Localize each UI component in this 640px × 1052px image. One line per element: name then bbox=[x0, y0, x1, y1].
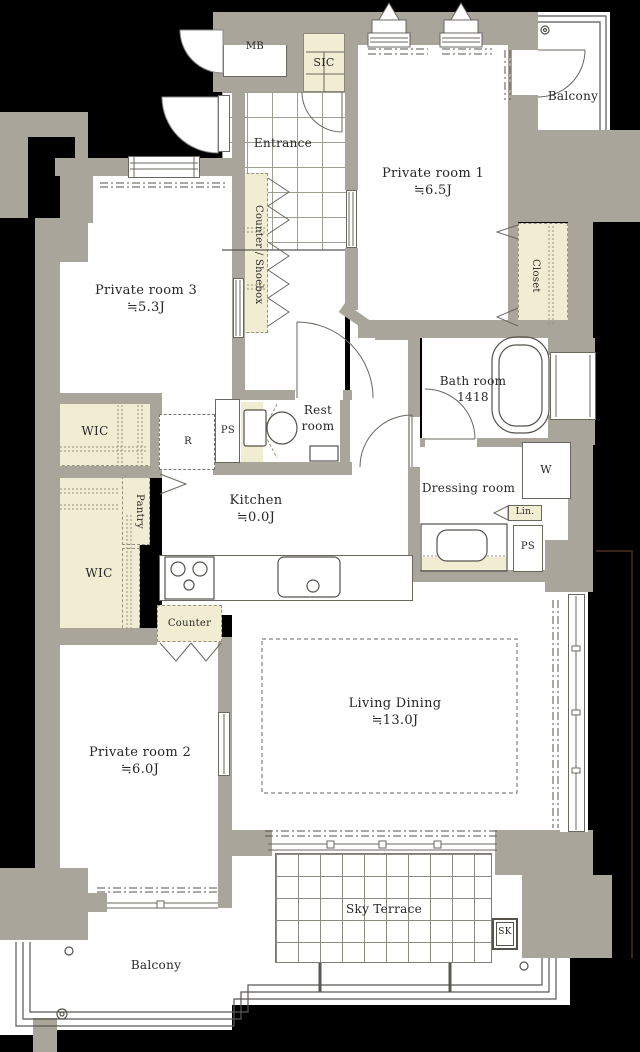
room-label-entrance: Entrance bbox=[238, 136, 328, 152]
room-name: Private room 3 bbox=[95, 283, 197, 298]
private-room3-sliding-door bbox=[233, 278, 244, 338]
room-label-wic-upper: WIC bbox=[65, 424, 125, 440]
room-size: 1418 bbox=[457, 390, 489, 404]
room-size: ≒6.5J bbox=[414, 183, 452, 198]
room-label-counter-shoebox: Counter / Shoebox bbox=[245, 182, 265, 327]
wall bbox=[53, 393, 162, 404]
wall bbox=[568, 440, 593, 540]
room-size: ≒5.3J bbox=[127, 300, 165, 315]
room-label-refrigerator: R bbox=[180, 435, 196, 448]
room-label-ps-left: PS bbox=[217, 424, 239, 437]
private-room1-sliding-door bbox=[346, 190, 357, 248]
room-label-wic-lower: WIC bbox=[69, 566, 129, 582]
private-room3-window bbox=[128, 156, 200, 178]
room-label-balcony-bottom: Balcony bbox=[116, 958, 196, 974]
room-label-linen: Lin. bbox=[510, 507, 540, 519]
wall bbox=[358, 320, 570, 338]
wall bbox=[345, 45, 358, 190]
ld-window bbox=[568, 594, 585, 832]
room-label-sic: SIC bbox=[306, 56, 342, 70]
room-size: ≒0.0J bbox=[237, 510, 275, 525]
room-label-bathroom: Bath room 1418 bbox=[428, 374, 518, 405]
pillar bbox=[0, 137, 28, 218]
balcony-door-gap bbox=[512, 50, 538, 95]
room-label-mb: MB bbox=[231, 40, 279, 53]
room-label-private2: Private room 2 ≒6.0J bbox=[80, 745, 200, 779]
private-room2-window bbox=[218, 712, 230, 776]
kitchen-counter bbox=[159, 555, 413, 601]
room-label-restroom: Rest room bbox=[294, 403, 342, 434]
room-name: Kitchen bbox=[230, 493, 283, 508]
dressing-door-gap bbox=[410, 417, 420, 467]
room-label-dressing: Dressing room bbox=[411, 481, 526, 497]
room-label-private3: Private room 3 ≒5.3J bbox=[86, 283, 206, 317]
wall bbox=[213, 77, 303, 92]
bathroom-window bbox=[550, 352, 596, 420]
room-name: Living Dining bbox=[349, 696, 442, 711]
wall bbox=[35, 262, 60, 905]
wic-lower-shelf-col bbox=[122, 548, 140, 633]
balcony-top-area bbox=[537, 12, 610, 132]
pillar bbox=[0, 868, 88, 940]
wall bbox=[218, 830, 272, 856]
room-label-pantry: Pantry bbox=[126, 482, 146, 540]
bathroom-door-gap bbox=[425, 438, 477, 447]
room-label-kitchen: Kitchen ≒0.0J bbox=[216, 493, 296, 527]
restroom-vanity-strip bbox=[241, 402, 263, 462]
wall bbox=[345, 248, 358, 310]
wall bbox=[53, 466, 153, 478]
room-label-balcony-top: Balcony bbox=[543, 89, 603, 105]
wall bbox=[53, 628, 157, 645]
wall bbox=[515, 130, 640, 222]
room-name: Bath room bbox=[440, 374, 507, 388]
wall bbox=[522, 875, 612, 958]
pillar bbox=[0, 112, 88, 137]
room-label-counter: Counter bbox=[159, 617, 220, 630]
room-label-sky-terrace: Sky Terrace bbox=[334, 902, 434, 918]
room-label-closet: Closet bbox=[524, 240, 542, 312]
entrance-door-leaf bbox=[218, 95, 230, 152]
private-room3-area-upper bbox=[93, 176, 240, 223]
pillar bbox=[33, 1018, 57, 1052]
room-name: Private room 2 bbox=[89, 745, 191, 760]
wall bbox=[495, 830, 593, 875]
room-size: ≒13.0J bbox=[372, 713, 419, 728]
pillar bbox=[75, 137, 88, 218]
room-label-washer: W bbox=[536, 463, 556, 477]
wall bbox=[232, 77, 245, 398]
fence-area-right bbox=[540, 955, 570, 1005]
wall bbox=[545, 540, 593, 592]
room-name: Private room 1 bbox=[382, 166, 484, 181]
room-label-ps-right: PS bbox=[516, 540, 540, 553]
wall bbox=[568, 222, 593, 342]
restroom-door-gap bbox=[295, 390, 343, 400]
wall bbox=[35, 218, 88, 262]
room-label-private1: Private room 1 ≒6.5J bbox=[373, 166, 493, 200]
dressing-vanity-strip bbox=[422, 557, 506, 570]
room-label-living-dining: Living Dining ≒13.0J bbox=[345, 696, 445, 730]
room-label-sk: SK bbox=[494, 927, 516, 939]
room-size: ≒6.0J bbox=[121, 762, 159, 777]
wall bbox=[213, 462, 352, 475]
floor-plan: MB SIC Entrance Private room 1 ≒6.5J Bal… bbox=[0, 0, 640, 1052]
